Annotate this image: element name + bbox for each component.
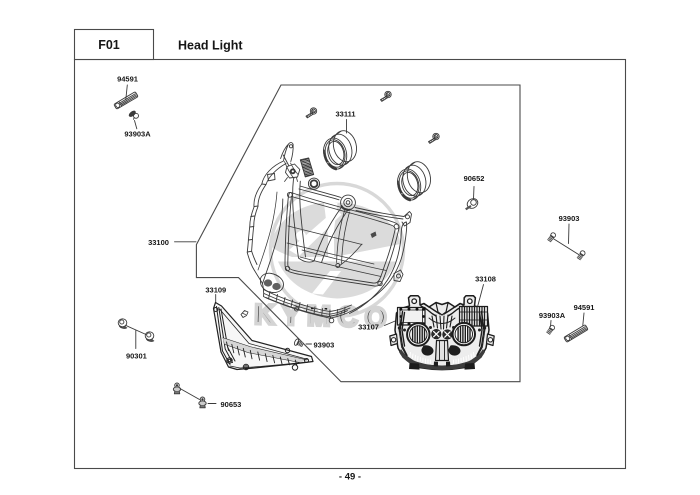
svg-text:F01: F01 [98, 38, 120, 52]
svg-text:94591: 94591 [117, 75, 138, 84]
svg-text:33109: 33109 [205, 286, 226, 295]
svg-text:Head Light: Head Light [178, 39, 243, 53]
svg-text:- 49 -: - 49 - [339, 472, 361, 483]
svg-text:93903A: 93903A [539, 311, 566, 320]
svg-text:33100: 33100 [148, 238, 169, 247]
svg-text:33107: 33107 [358, 323, 379, 332]
svg-text:90301: 90301 [126, 351, 147, 360]
svg-text:33108: 33108 [475, 275, 496, 284]
svg-text:90652: 90652 [464, 174, 485, 183]
svg-text:90653: 90653 [221, 400, 242, 409]
svg-text:93903A: 93903A [124, 129, 151, 138]
svg-text:93903: 93903 [559, 214, 580, 223]
svg-text:33111: 33111 [335, 110, 355, 119]
svg-text:94591: 94591 [574, 303, 595, 312]
svg-text:93903: 93903 [314, 341, 335, 350]
